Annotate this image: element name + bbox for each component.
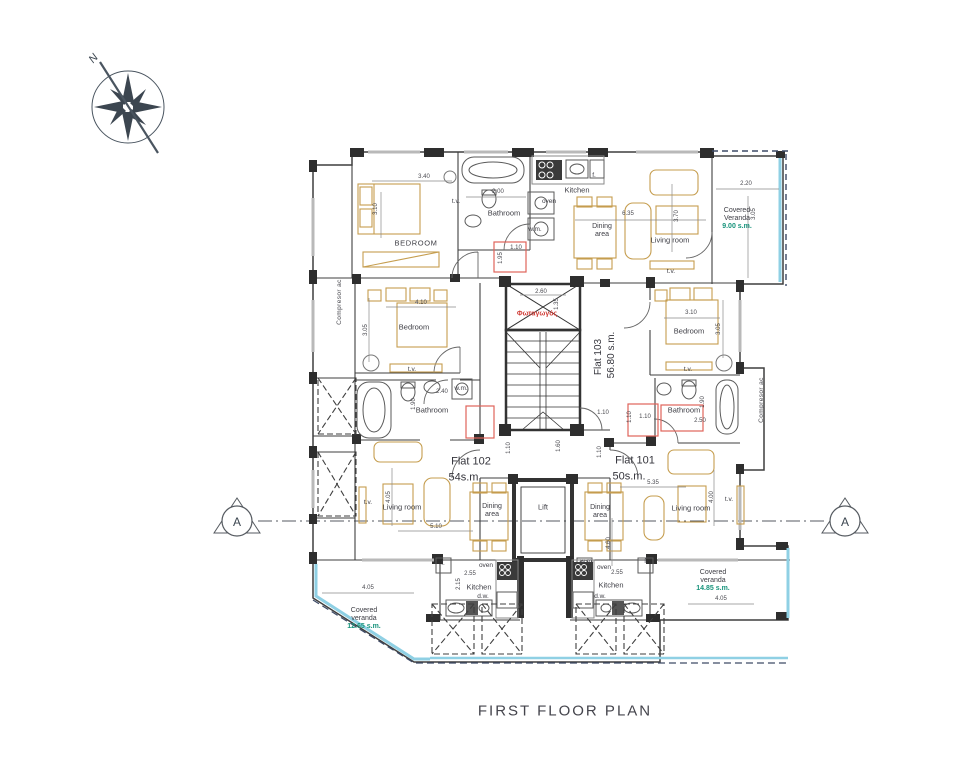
room-label-bedroom-midleft: Bedroom [399,323,429,331]
dim-1-10-b: 1.10 [597,410,609,416]
dim-5-10: 5.10 [430,524,442,530]
dim-4-10: 4.10 [415,300,427,306]
fridge-label-2: f. [441,561,445,568]
furniture [358,170,744,551]
dim-1-90-b: 1.90 [700,396,706,408]
room-label-lift: Lift [538,503,548,511]
room-label-bathroom-midleft: Bathroom [416,406,449,414]
dim-4-00: 4.00 [709,491,715,503]
dim-3-10-v: 3.10 [373,203,379,215]
dim-4-60: 4.60 [606,537,612,549]
dim-6-35: 6.35 [622,211,634,217]
floor-plan-drawing [0,0,961,763]
room-label-kitchen-right: Kitchen [598,581,623,589]
veranda-top-label: CoveredVeranda9.00 s.m. [722,207,752,231]
dw-label-2: d.w. [594,594,606,601]
dim-2-55-a: 2.55 [464,571,476,577]
room-label-living-flat101: Living room [672,504,711,512]
room-label-bathroom-top: Bathroom [488,209,521,217]
tv-label-3: t.v. [684,367,692,374]
dim-1-10-e: 1.10 [639,414,651,420]
dim-2-50: 2.50 [694,418,706,424]
section-marker-a-left: A [233,516,241,528]
section-marker-a-right: A [841,516,849,528]
dim-4-05-v: 4.05 [386,491,392,503]
flat-103-name: Flat 103 [594,339,604,375]
dim-5-35: 5.35 [647,480,659,486]
veranda-right-label: Coveredveranda14.85 s.m. [696,569,729,593]
dim-2-60: 2.60 [535,289,547,295]
flat-102-name: Flat 102 [451,457,491,468]
interior-walls [313,152,790,620]
compass-rose-icon [92,62,164,153]
flat-102-area: 54s.m. [448,473,481,484]
tv-label-5: t.v. [725,497,733,504]
label-compressor-right: Compresor ac [759,377,766,423]
room-label-dining-top: Diningarea [592,223,612,239]
dim-1-10-a: 1.10 [510,245,522,251]
dim-3-05-b: 3.05 [363,324,369,336]
room-label-dining-flat102: Diningarea [482,503,502,519]
dim-2-20: 2.20 [740,181,752,187]
dim-2-55-b: 2.55 [611,570,623,576]
dw-label-1: d.w. [477,594,489,601]
tv-label-1: t.v. [452,199,460,206]
dim-3-70: 3.70 [674,210,680,222]
plan-title: FIRST FLOOR PLAN [478,703,652,720]
wm-label-2: w.m. [454,386,467,393]
dim-3-05-a: 3.05 [751,208,757,220]
room-label-living-flat102: Living room [383,503,422,511]
dim-1-10-d: 1.10 [627,411,633,423]
room-label-bathroom-midright: Bathroom [668,406,701,414]
room-label-dining-flat101: Diningarea [590,504,610,520]
dim-1-90-a: 1.90 [411,398,417,410]
stair-core [506,284,580,560]
tv-label-2: t.v. [408,367,416,374]
room-label-lightwell: Φωταγωγός [517,311,557,318]
dim-1-10-f: 1.10 [506,442,512,454]
dim-1-95: 1.95 [498,252,504,264]
room-label-bedroom-midright: Bedroom [674,327,704,335]
veranda-left-label: Coveredveranda12.65 s.m. [347,607,380,631]
room-label-bedroom-upper: BEDROOM [395,239,438,247]
fridge-label-3: f. [644,559,648,566]
dim-3-05-c: 3.05 [716,323,722,335]
wm-label-3: w.m. [580,559,593,566]
flat-101-area: 50s.m. [612,472,645,483]
dim-3-10-b: 3.10 [685,310,697,316]
tv-label-6: t.v. [667,269,675,276]
room-label-living-top: Living room [651,236,690,244]
dim-1-10-c: 1.10 [597,446,603,458]
floor-plan-page: N A A BEDROOM Bedroom Bedroom Bathroom B… [0,0,961,763]
room-label-kitchen-left: Kitchen [466,583,491,591]
dim-2-00: 2.00 [492,189,504,195]
tv-label-4: t.v. [364,500,372,507]
oven-label-3: oven [597,565,611,572]
flat-103-area: 56.80 s.m. [607,332,617,379]
wm-label-1: w.m. [528,227,541,234]
room-label-kitchen-top: Kitchen [564,186,589,194]
lift-shaft [514,480,572,560]
oven-label-1: oven [542,199,556,206]
fridge-label-1: f. [592,173,596,180]
dim-3-40: 3.40 [418,174,430,180]
label-compressor-left: Compresor ac [337,279,344,325]
dim-2-15: 2.15 [456,578,462,590]
oven-label-2: oven [479,563,493,570]
dim-4-05-a: 4.05 [362,585,374,591]
dim-2-40: 2.40 [436,389,448,395]
flat-101-name: Flat 101 [615,456,655,467]
dim-1-60: 1.60 [556,440,562,452]
dim-1-35: 1.35 [554,298,560,310]
dim-4-05-b: 4.05 [715,596,727,602]
fixtures-graphics [357,156,738,618]
